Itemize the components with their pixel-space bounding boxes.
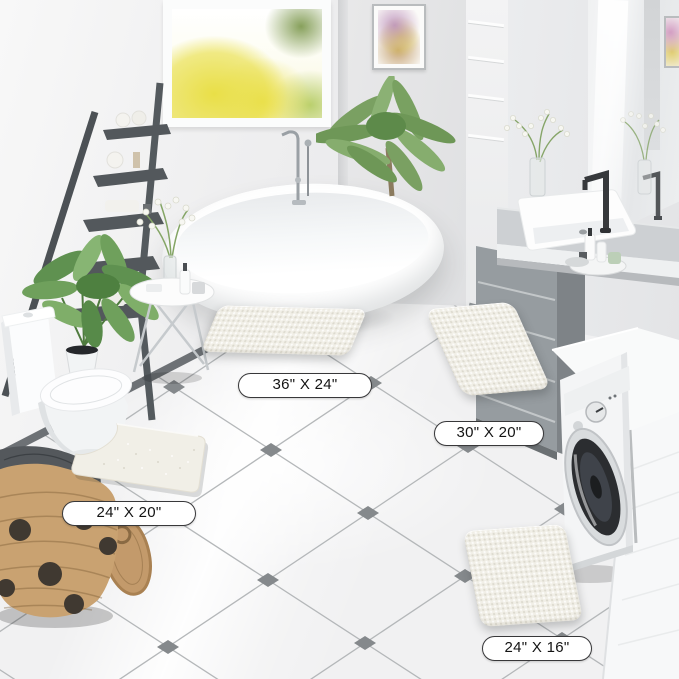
palm-plant: [316, 76, 456, 218]
sink-drain: [579, 230, 587, 235]
bath-mat-36x24: [200, 305, 367, 355]
small-mat-24x16: [463, 524, 583, 627]
size-label-30x20: 30" X 20": [434, 421, 544, 446]
size-label-24x20: 24" X 20": [62, 501, 196, 526]
table-flowers: [137, 197, 195, 258]
bathroom-product-photo: 36" X 24" 30" X 20" 24" X 20" 24" X 16": [0, 0, 679, 679]
size-label-24x16: 24" X 16": [482, 636, 592, 661]
hand-shower-head: [305, 140, 312, 147]
size-label-36x24: 36" X 24": [238, 373, 372, 398]
washing-machine-unit: [540, 318, 679, 679]
flower-vase: [504, 109, 569, 196]
side-table: [112, 192, 242, 387]
contour-bath-mat: [58, 410, 228, 506]
